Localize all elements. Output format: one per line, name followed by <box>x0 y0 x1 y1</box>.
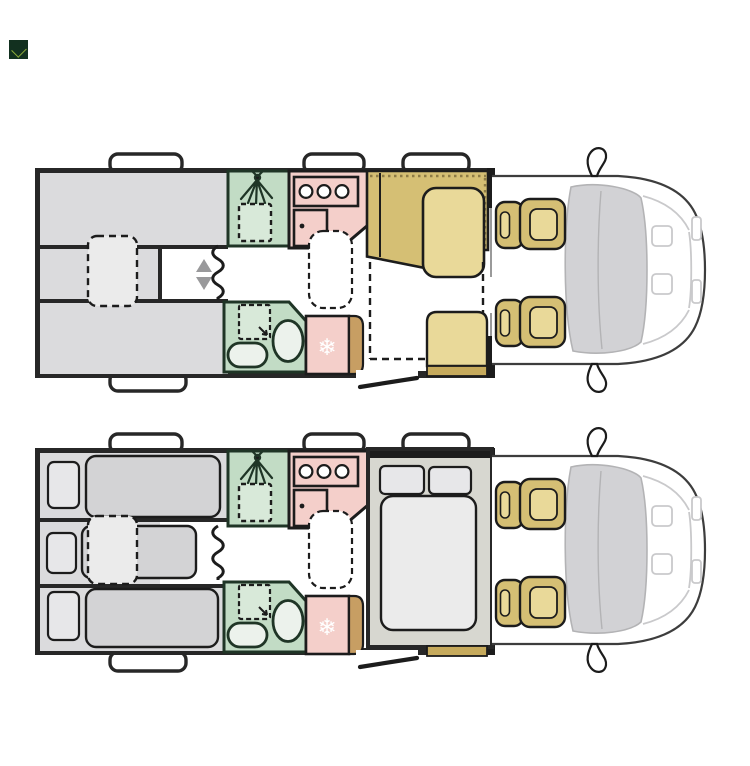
double-mattress <box>381 496 476 630</box>
cab-day <box>492 148 705 392</box>
dinette-cushion <box>423 188 484 277</box>
pillow <box>48 462 79 508</box>
pillow <box>380 466 424 494</box>
rear-lounge-top <box>40 173 228 245</box>
floorplan-day <box>39 148 706 392</box>
bed-headboard <box>370 451 490 458</box>
floorplan-page: ❄ <box>0 0 750 766</box>
cab-night <box>492 428 705 672</box>
floorplans-canvas: ❄ <box>0 0 750 766</box>
double-bed <box>368 449 492 647</box>
folding-table-outline <box>88 516 137 584</box>
rear-lounge-bottom <box>40 303 228 374</box>
dinette-seat-small <box>427 312 487 366</box>
single-bed-bottom <box>86 589 218 647</box>
pillow <box>429 467 471 494</box>
pillow <box>48 592 79 640</box>
pillow <box>47 533 76 573</box>
folding-table-outline <box>88 236 137 306</box>
floorplan-night <box>39 428 706 672</box>
single-bed-top <box>86 456 220 517</box>
